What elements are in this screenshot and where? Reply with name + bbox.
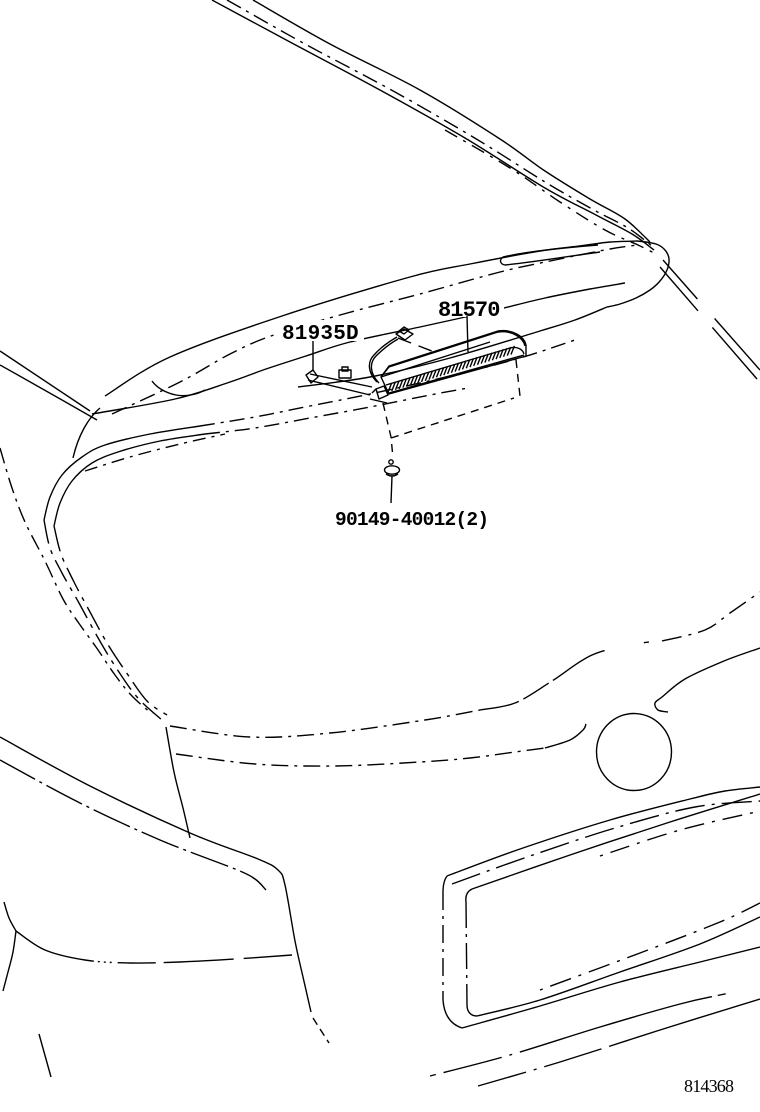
svg-text:814368: 814368 bbox=[684, 1076, 734, 1096]
svg-text:81935D: 81935D bbox=[282, 323, 359, 346]
svg-text:90149-40012(2): 90149-40012(2) bbox=[335, 509, 488, 531]
svg-text:81570: 81570 bbox=[438, 298, 500, 323]
